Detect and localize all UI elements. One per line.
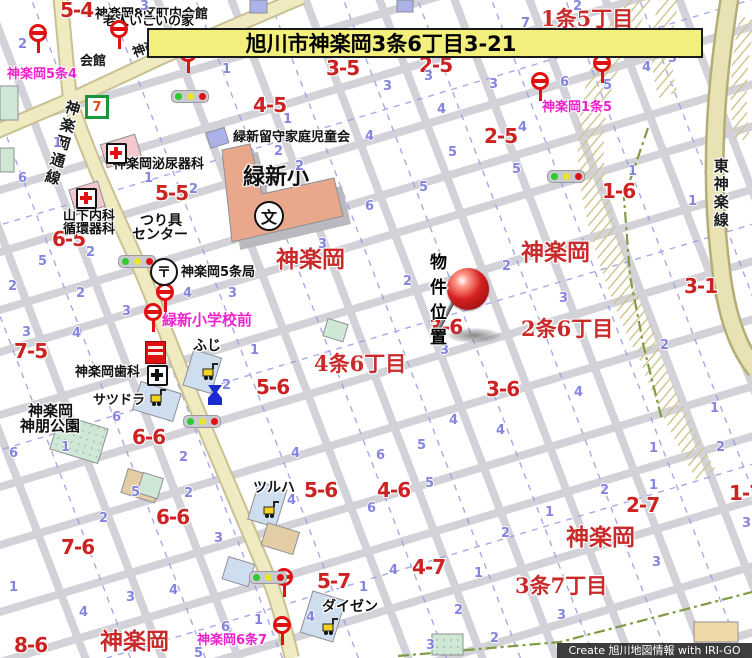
title-banner: 旭川市神楽岡3条6丁目3-21 [147,28,703,58]
hospital-cross-icon [76,188,97,209]
shopping-cart-icon [200,363,220,385]
pin-shadow [447,328,501,343]
map-icons-layer: 〒文7 [0,0,752,658]
property-location-label: 物件位置 [430,248,447,348]
school-symbol-icon: 文 [254,201,284,231]
bus-stop-icon [531,72,549,101]
bus-stop-icon [110,20,128,49]
blue-landmark-icon [207,384,223,410]
red-store-logo [145,341,166,364]
bus-stop-icon [29,24,47,53]
dental-cross-icon [147,365,168,386]
map-canvas[interactable]: 神楽岡神楽岡神楽岡神楽岡1条5丁目2条6丁目4条6丁目3条7丁目5-43-52-… [0,0,752,658]
pin-sphere-icon [447,268,489,310]
traffic-light-icon [547,170,585,183]
shopping-cart-icon [320,618,340,640]
seven-eleven-icon: 7 [85,95,109,119]
shopping-cart-icon [148,389,168,411]
hospital-cross-icon [106,143,127,164]
traffic-light-icon [183,415,221,428]
bus-stop-icon [273,616,291,645]
post-office-icon: 〒 [150,258,178,286]
shopping-cart-icon [261,501,281,523]
credit-bar: Create 旭川地図情報 with IRI-GO [557,643,752,658]
traffic-light-icon [249,571,287,584]
traffic-light-icon [171,90,209,103]
bus-stop-icon [144,303,162,332]
